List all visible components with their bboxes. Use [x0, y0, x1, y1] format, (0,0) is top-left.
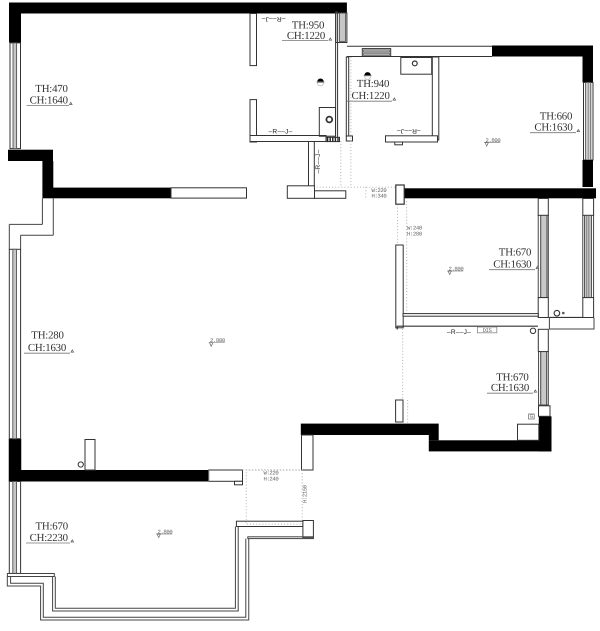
svg-text:TH:940: TH:940 [357, 78, 389, 90]
svg-text:CH:1630: CH:1630 [534, 122, 572, 134]
svg-text:CH:2230: CH:2230 [30, 532, 68, 544]
svg-text:H:2150: H:2150 [302, 484, 309, 503]
svg-text:TH:670: TH:670 [36, 521, 68, 533]
svg-text:TH:280: TH:280 [31, 330, 63, 342]
svg-text:CH:1630: CH:1630 [491, 382, 529, 394]
svg-text:DIS: DIS [483, 327, 493, 334]
svg-text:H:240: H:240 [264, 475, 280, 482]
svg-text:–R––J–: –R––J– [269, 129, 293, 136]
svg-text:H:340: H:340 [372, 193, 388, 200]
svg-text:–R––J–: –R––J– [261, 15, 285, 22]
svg-text:CH:1630: CH:1630 [493, 259, 531, 271]
svg-text:H:280: H:280 [407, 231, 423, 238]
svg-text:–R––J–: –R––J– [397, 127, 421, 134]
svg-text:–R––J–: –R––J– [315, 149, 322, 173]
svg-text:CH:1640: CH:1640 [30, 95, 68, 107]
svg-text:TH:670: TH:670 [499, 247, 531, 259]
svg-text:CH:1220: CH:1220 [351, 90, 389, 102]
svg-text:TH:470: TH:470 [35, 83, 67, 95]
svg-text:CH:1630: CH:1630 [28, 342, 66, 354]
svg-text:–R––J–: –R––J– [447, 329, 471, 336]
